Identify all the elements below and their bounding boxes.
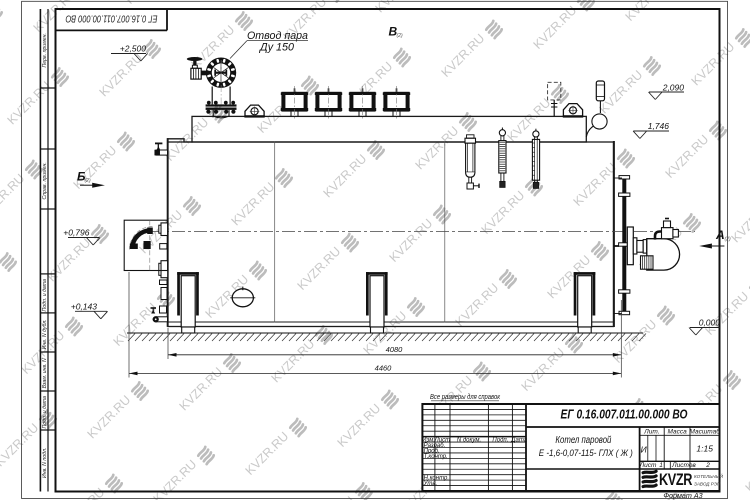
svg-text:Утв.: Утв. <box>423 481 438 487</box>
svg-text:KVZR.RU: KVZR.RU <box>269 337 318 386</box>
svg-text:KVZR.RU: KVZR.RU <box>373 0 422 15</box>
svg-text:KVZR.RU: KVZR.RU <box>505 96 554 145</box>
svg-text:Подп. и дата: Подп. и дата <box>42 279 48 312</box>
svg-text:KVZR.RU: KVZR.RU <box>151 457 200 500</box>
svg-text:(2): (2) <box>397 33 403 39</box>
svg-text:+0,143: +0,143 <box>71 301 98 311</box>
svg-text:(2): (2) <box>85 178 91 184</box>
svg-text:KVZR.RU: KVZR.RU <box>571 160 620 209</box>
svg-text:+0,796: +0,796 <box>63 228 90 238</box>
svg-text:KVZR.RU: KVZR.RU <box>611 317 660 366</box>
svg-text:KVZR.RU: KVZR.RU <box>689 40 738 89</box>
svg-text:KVZR.RU: KVZR.RU <box>335 401 384 450</box>
svg-text:Взам. инв. N: Взам. инв. N <box>42 358 48 388</box>
svg-text:KVZR.RU: KVZR.RU <box>45 236 94 285</box>
svg-text:KVZR.RU: KVZR.RU <box>0 171 27 220</box>
svg-text:KVZR.RU: KVZR.RU <box>413 124 462 173</box>
svg-text:+2,500: +2,500 <box>120 44 147 54</box>
svg-text:KVZR.RU: KVZR.RU <box>387 216 436 265</box>
svg-text:2: 2 <box>705 462 710 469</box>
svg-text:Т.контр.: Т.контр. <box>424 454 448 460</box>
svg-text:Инв. N дубл.: Инв. N дубл. <box>42 319 48 349</box>
svg-text:И: И <box>641 445 648 455</box>
svg-text:N докум.: N докум. <box>457 438 481 444</box>
svg-text:Подп.: Подп. <box>492 438 508 444</box>
svg-text:ЕГ 0.16.007.011.00.000 ВО: ЕГ 0.16.007.011.00.000 ВО <box>66 13 158 25</box>
svg-text:KVZR.RU: KVZR.RU <box>519 345 568 394</box>
svg-text:Справ. примен.: Справ. примен. <box>42 162 48 199</box>
svg-text:Масштаб: Масштаб <box>690 427 721 435</box>
svg-text:0,000: 0,000 <box>699 318 721 328</box>
svg-text:KVZR.RU: KVZR.RU <box>243 429 292 478</box>
svg-text:Лист: Лист <box>639 462 657 469</box>
svg-text:Масса: Масса <box>667 428 687 435</box>
svg-text:KVZR.RU: KVZR.RU <box>0 264 1 313</box>
svg-text:KVZR.RU: KVZR.RU <box>479 188 528 237</box>
svg-text:KVZR.RU: KVZR.RU <box>229 180 278 229</box>
svg-text:Формат А3: Формат А3 <box>663 491 702 500</box>
svg-text:KVZR.RU: KVZR.RU <box>309 494 358 500</box>
svg-text:KVZR: KVZR <box>659 471 692 489</box>
svg-text:ЗАВОД РЭП: ЗАВОД РЭП <box>694 482 721 487</box>
svg-text:KVZR.RU: KVZR.RU <box>177 365 226 414</box>
svg-text:KVZR.RU: KVZR.RU <box>5 79 54 128</box>
svg-text:KVZR.RU: KVZR.RU <box>531 3 580 52</box>
svg-text:KVZR.RU: KVZR.RU <box>163 115 212 164</box>
svg-text:KVZR.RU: KVZR.RU <box>85 393 134 442</box>
svg-text:Перв. примен.: Перв. примен. <box>42 33 48 67</box>
svg-text:ЕГ 0.16.007.011.00.000 ВО: ЕГ 0.16.007.011.00.000 ВО <box>561 407 688 422</box>
svg-text:KVZR.RU: KVZR.RU <box>623 0 672 24</box>
svg-text:KVZR.RU: KVZR.RU <box>0 421 41 470</box>
svg-text:1,746: 1,746 <box>648 121 670 131</box>
svg-text:KVZR.RU: KVZR.RU <box>321 152 370 201</box>
svg-text:(2): (2) <box>725 237 731 243</box>
svg-text:Дата: Дата <box>510 438 527 444</box>
svg-text:KVZR.RU: KVZR.RU <box>729 197 750 246</box>
svg-text:4460: 4460 <box>375 364 393 373</box>
svg-text:KVZR.RU: KVZR.RU <box>439 31 488 80</box>
svg-text:1: 1 <box>659 462 663 469</box>
svg-text:1:15: 1:15 <box>696 444 713 454</box>
svg-text:Лит.: Лит. <box>643 428 659 435</box>
svg-text:А: А <box>715 228 725 242</box>
svg-text:KVZR.RU: KVZR.RU <box>663 132 712 181</box>
svg-text:2,090: 2,090 <box>662 83 685 93</box>
svg-text:Все размеры для справок: Все размеры для справок <box>430 393 501 401</box>
svg-text:Отвод пара: Отвод пара <box>247 30 308 42</box>
svg-text:Ду 150: Ду 150 <box>258 42 295 54</box>
svg-text:KVZR.RU: KVZR.RU <box>743 446 750 495</box>
svg-text:KVZR.RU: KVZR.RU <box>59 485 108 500</box>
svg-text:Е -1,6-0,07-115- ГЛХ ( Ж ): Е -1,6-0,07-115- ГЛХ ( Ж ) <box>539 448 633 459</box>
svg-text:Листов: Листов <box>671 462 696 469</box>
svg-text:KVZR.RU: KVZR.RU <box>295 244 344 293</box>
svg-text:Подп. и дата: Подп. и дата <box>42 396 48 429</box>
svg-text:Инв. N подл.: Инв. N подл. <box>42 448 48 478</box>
svg-text:4080: 4080 <box>386 345 404 354</box>
svg-text:KVZR.RU: KVZR.RU <box>703 289 750 338</box>
svg-text:КОТЕЛЬНЫЙ: КОТЕЛЬНЫЙ <box>694 472 724 479</box>
svg-text:Котел паровой: Котел паровой <box>555 435 611 446</box>
